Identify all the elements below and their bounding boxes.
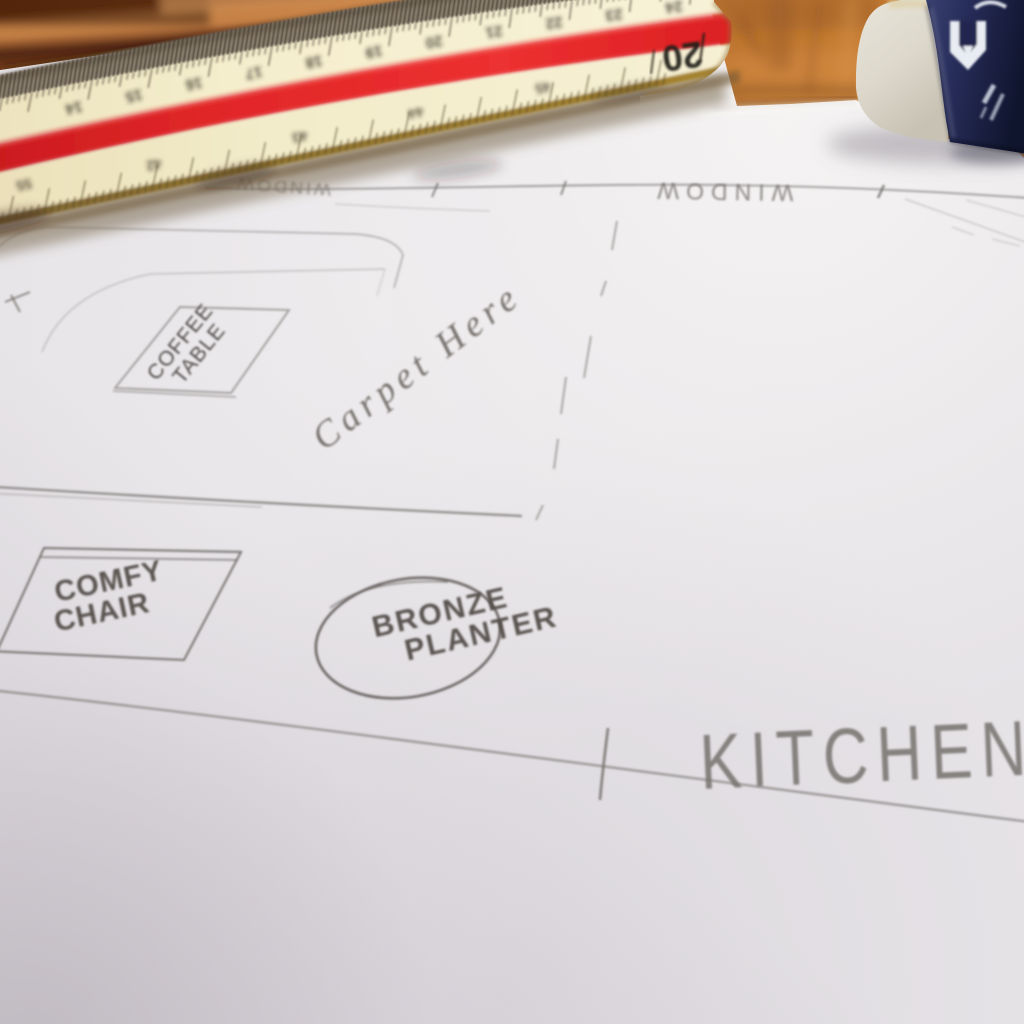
svg-text:KITCHEN: KITCHEN [698,704,1024,806]
svg-text:20: 20 [660,33,705,79]
svg-text:18: 18 [304,52,323,72]
svg-text:21: 21 [484,22,503,41]
svg-text:24: 24 [664,0,684,16]
svg-text:WINDOW: WINDOW [650,178,793,206]
svg-text:17: 17 [244,63,264,83]
svg-text:23: 23 [604,5,623,24]
svg-text:20: 20 [424,32,443,52]
svg-text:19: 19 [364,42,383,62]
svg-text:22: 22 [544,13,563,32]
svg-text:15: 15 [124,85,144,105]
svg-text:16: 16 [184,74,204,94]
